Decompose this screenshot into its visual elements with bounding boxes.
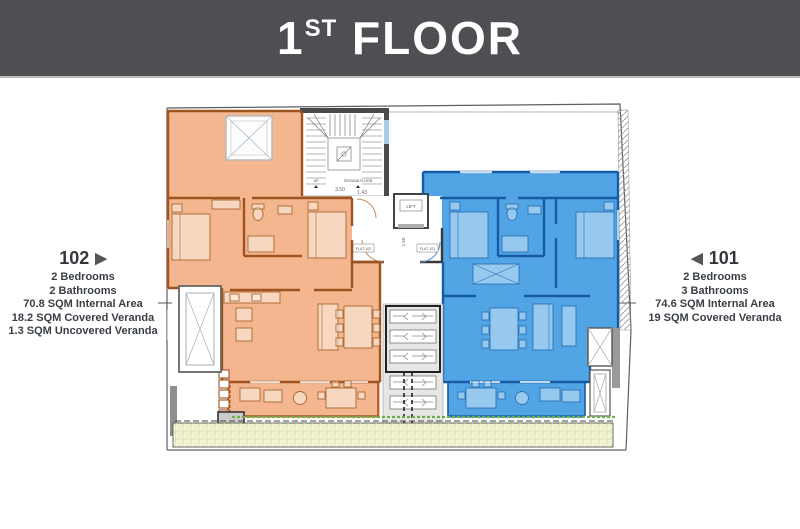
stair-down-note: GROUND FLOOR — [344, 179, 373, 183]
stair-up-note: UP — [314, 179, 320, 183]
header-banner: 1ST FLOOR — [0, 0, 800, 78]
landing-dim: 1.43 — [357, 190, 367, 196]
stairwell: UP GROUND FLOOR 3.50 — [300, 108, 389, 198]
shafts-right — [588, 328, 620, 416]
apartment-102-number: 102 — [59, 248, 89, 269]
flat-101-tag-label: FLAT 101 — [420, 247, 435, 251]
apartment-101-number: 101 — [709, 248, 739, 269]
stair-window — [384, 120, 389, 144]
flat-102-tag-label: FLAT 102 — [356, 247, 371, 251]
spec-line: 1.3 SQM Uncovered Veranda — [0, 325, 166, 339]
planter-column — [383, 304, 443, 426]
lobby: 1.43 1.50 LIFT FLAT 102 FLAT 101 — [352, 190, 442, 262]
spec-line: 2 Bathrooms — [0, 285, 166, 299]
spec-line: 18.2 SQM Covered Veranda — [0, 312, 166, 326]
spec-line: 2 Bedrooms — [630, 271, 800, 285]
apartment-102-info: 102 ▶ 2 Bedrooms 2 Bathrooms 70.8 SQM In… — [0, 248, 166, 339]
lift: LIFT — [394, 194, 428, 228]
lift-label: LIFT — [406, 204, 416, 209]
lobby-dim: 1.50 — [401, 237, 406, 246]
spec-line: 3 Bathrooms — [630, 285, 800, 299]
flat-102-planters — [219, 370, 229, 418]
title-number: 1 — [277, 12, 305, 64]
page-title: 1ST FLOOR — [277, 11, 523, 65]
spec-line: 19 SQM Covered Veranda — [630, 312, 800, 326]
title-text: FLOOR — [337, 12, 523, 64]
title-ordinal: ST — [305, 15, 338, 42]
stair-dim: 3.50 — [335, 187, 345, 193]
skylight-shaft — [226, 116, 272, 160]
spec-line: 70.8 SQM Internal Area — [0, 298, 166, 312]
arrow-left-icon: ◀ — [691, 251, 703, 266]
spec-line: 2 Bedrooms — [0, 271, 166, 285]
garden-strip — [173, 423, 613, 447]
flat-101-tag: FLAT 101 — [417, 244, 438, 252]
light-well-left — [179, 286, 221, 372]
spec-line: 74.6 SQM Internal Area — [630, 298, 800, 312]
arrow-right-icon: ▶ — [95, 251, 107, 266]
flat-102-tag: FLAT 102 — [353, 244, 374, 252]
apartment-101-info: ◀ 101 2 Bedrooms 3 Bathrooms 74.6 SQM In… — [630, 248, 800, 325]
stair-wall-top — [300, 108, 388, 113]
lift-door — [398, 224, 424, 228]
